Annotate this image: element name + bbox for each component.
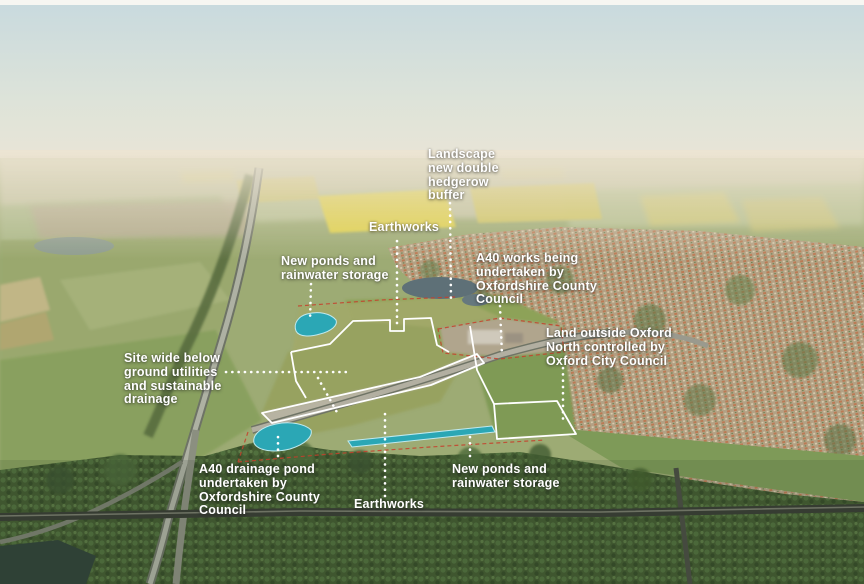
annotation-new-ponds-north: New ponds and rainwater storage	[281, 255, 401, 283]
annotation-earthworks-north: Earthworks	[369, 221, 459, 235]
aerial-photo: Landscape new double hedgerow buffer Ear…	[0, 0, 864, 584]
leader-new-ponds-north	[310, 284, 311, 321]
aerial-photo-canvas	[0, 0, 864, 584]
annotation-new-ponds-south: New ponds and rainwater storage	[452, 463, 572, 491]
annotation-earthworks-south: Earthworks	[354, 498, 444, 512]
annotation-a40-works: A40 works being undertaken by Oxfordshir…	[476, 252, 604, 307]
annotation-site-wide-utilities: Site wide below ground utilities and sus…	[124, 352, 232, 407]
annotation-a40-drainage-pond: A40 drainage pond undertaken by Oxfordsh…	[199, 463, 325, 518]
annotation-land-outside-oxford-north: Land outside Oxford North controlled by …	[546, 327, 680, 368]
annotation-landscape-hedgerow-buffer: Landscape new double hedgerow buffer	[428, 148, 508, 203]
vignette	[0, 460, 864, 584]
